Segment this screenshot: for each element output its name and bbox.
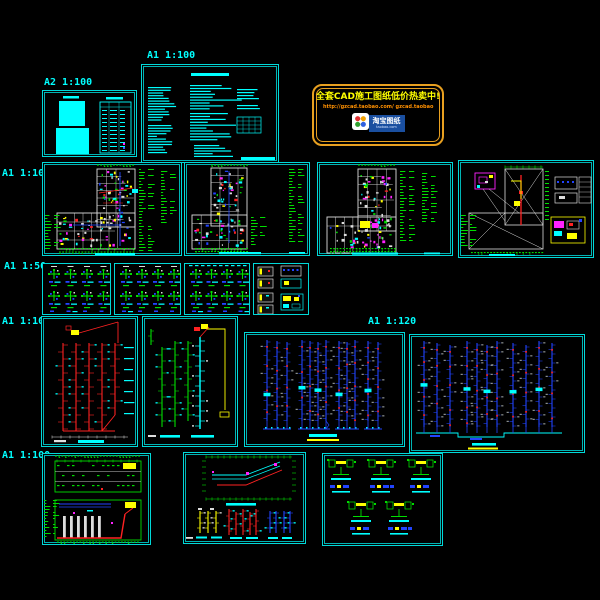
promo-banner: 全套CAD施工图纸低价热卖中! http://gzcad.taobao.com/… — [312, 84, 444, 146]
sheet-riser-diagram-green — [142, 316, 238, 447]
sheet-distribution-units-1 — [42, 263, 111, 315]
scale-label-cover: A2 1:100 — [44, 77, 92, 88]
scale-label-risers-mid: A1 1:120 — [368, 316, 416, 327]
logo-text: 淘宝图纸 — [373, 117, 401, 125]
distribution-units-1-drawing — [43, 264, 110, 314]
floor-plan-2-drawing — [185, 163, 309, 255]
logo-text-box: 淘宝图纸 taobao.com — [369, 115, 405, 132]
scale-label-notes: A1 1:100 — [147, 50, 195, 61]
riser-red-drawing — [42, 317, 137, 446]
sheet-riser-diagram-red — [41, 316, 138, 447]
promo-headline: 全套CAD施工图纸低价热卖中! — [314, 92, 442, 102]
design-notes-drawing — [142, 65, 278, 162]
title-block-drawing — [43, 91, 136, 156]
sheet-floor-plan-1 — [42, 162, 182, 256]
floor-plan-1-drawing — [43, 163, 181, 255]
basement-plans-drawing — [43, 454, 150, 544]
riser-blue-2-drawing — [410, 335, 584, 452]
pinwheel-logo-icon — [352, 113, 369, 134]
sheet-title-block — [42, 90, 137, 157]
sheet-floor-plan-3 — [317, 162, 453, 256]
sheet-distribution-units-2 — [114, 263, 181, 315]
promo-logo: 淘宝图纸 taobao.com — [314, 113, 442, 134]
sheet-unit-diagrams — [322, 453, 443, 546]
logo-subtext: taobao.com — [376, 125, 397, 130]
cad-preview-canvas: A1 1:100 A2 1:100 A1 1:100 A1 1:50 A1 1:… — [0, 0, 600, 600]
sheet-distribution-units-3 — [184, 263, 250, 315]
sheet-riser-diagram-blue-1 — [244, 332, 405, 447]
sheet-roof-plan — [458, 160, 594, 258]
ramp-profile-drawing — [184, 453, 305, 543]
panel-details-drawing — [254, 264, 308, 314]
distribution-units-3-drawing — [185, 264, 249, 314]
sheet-riser-diagram-blue-2 — [409, 334, 585, 453]
promo-url: http://gzcad.taobao.com/ gzcad.taobao — [323, 104, 442, 110]
sheet-panel-details — [253, 263, 309, 315]
floor-plan-3-drawing — [318, 163, 452, 255]
scale-label-details: A1 1:50 — [4, 261, 46, 272]
sheet-design-notes — [141, 64, 279, 163]
riser-green-drawing — [143, 317, 237, 446]
distribution-units-2-drawing — [115, 264, 180, 314]
sheet-floor-plan-2 — [184, 162, 310, 256]
riser-blue-1-drawing — [245, 333, 404, 446]
sheet-basement-plans — [42, 453, 151, 545]
unit-diagrams-drawing — [323, 454, 442, 545]
sheet-ramp-profile — [183, 452, 306, 544]
roof-plan-drawing — [459, 161, 593, 257]
